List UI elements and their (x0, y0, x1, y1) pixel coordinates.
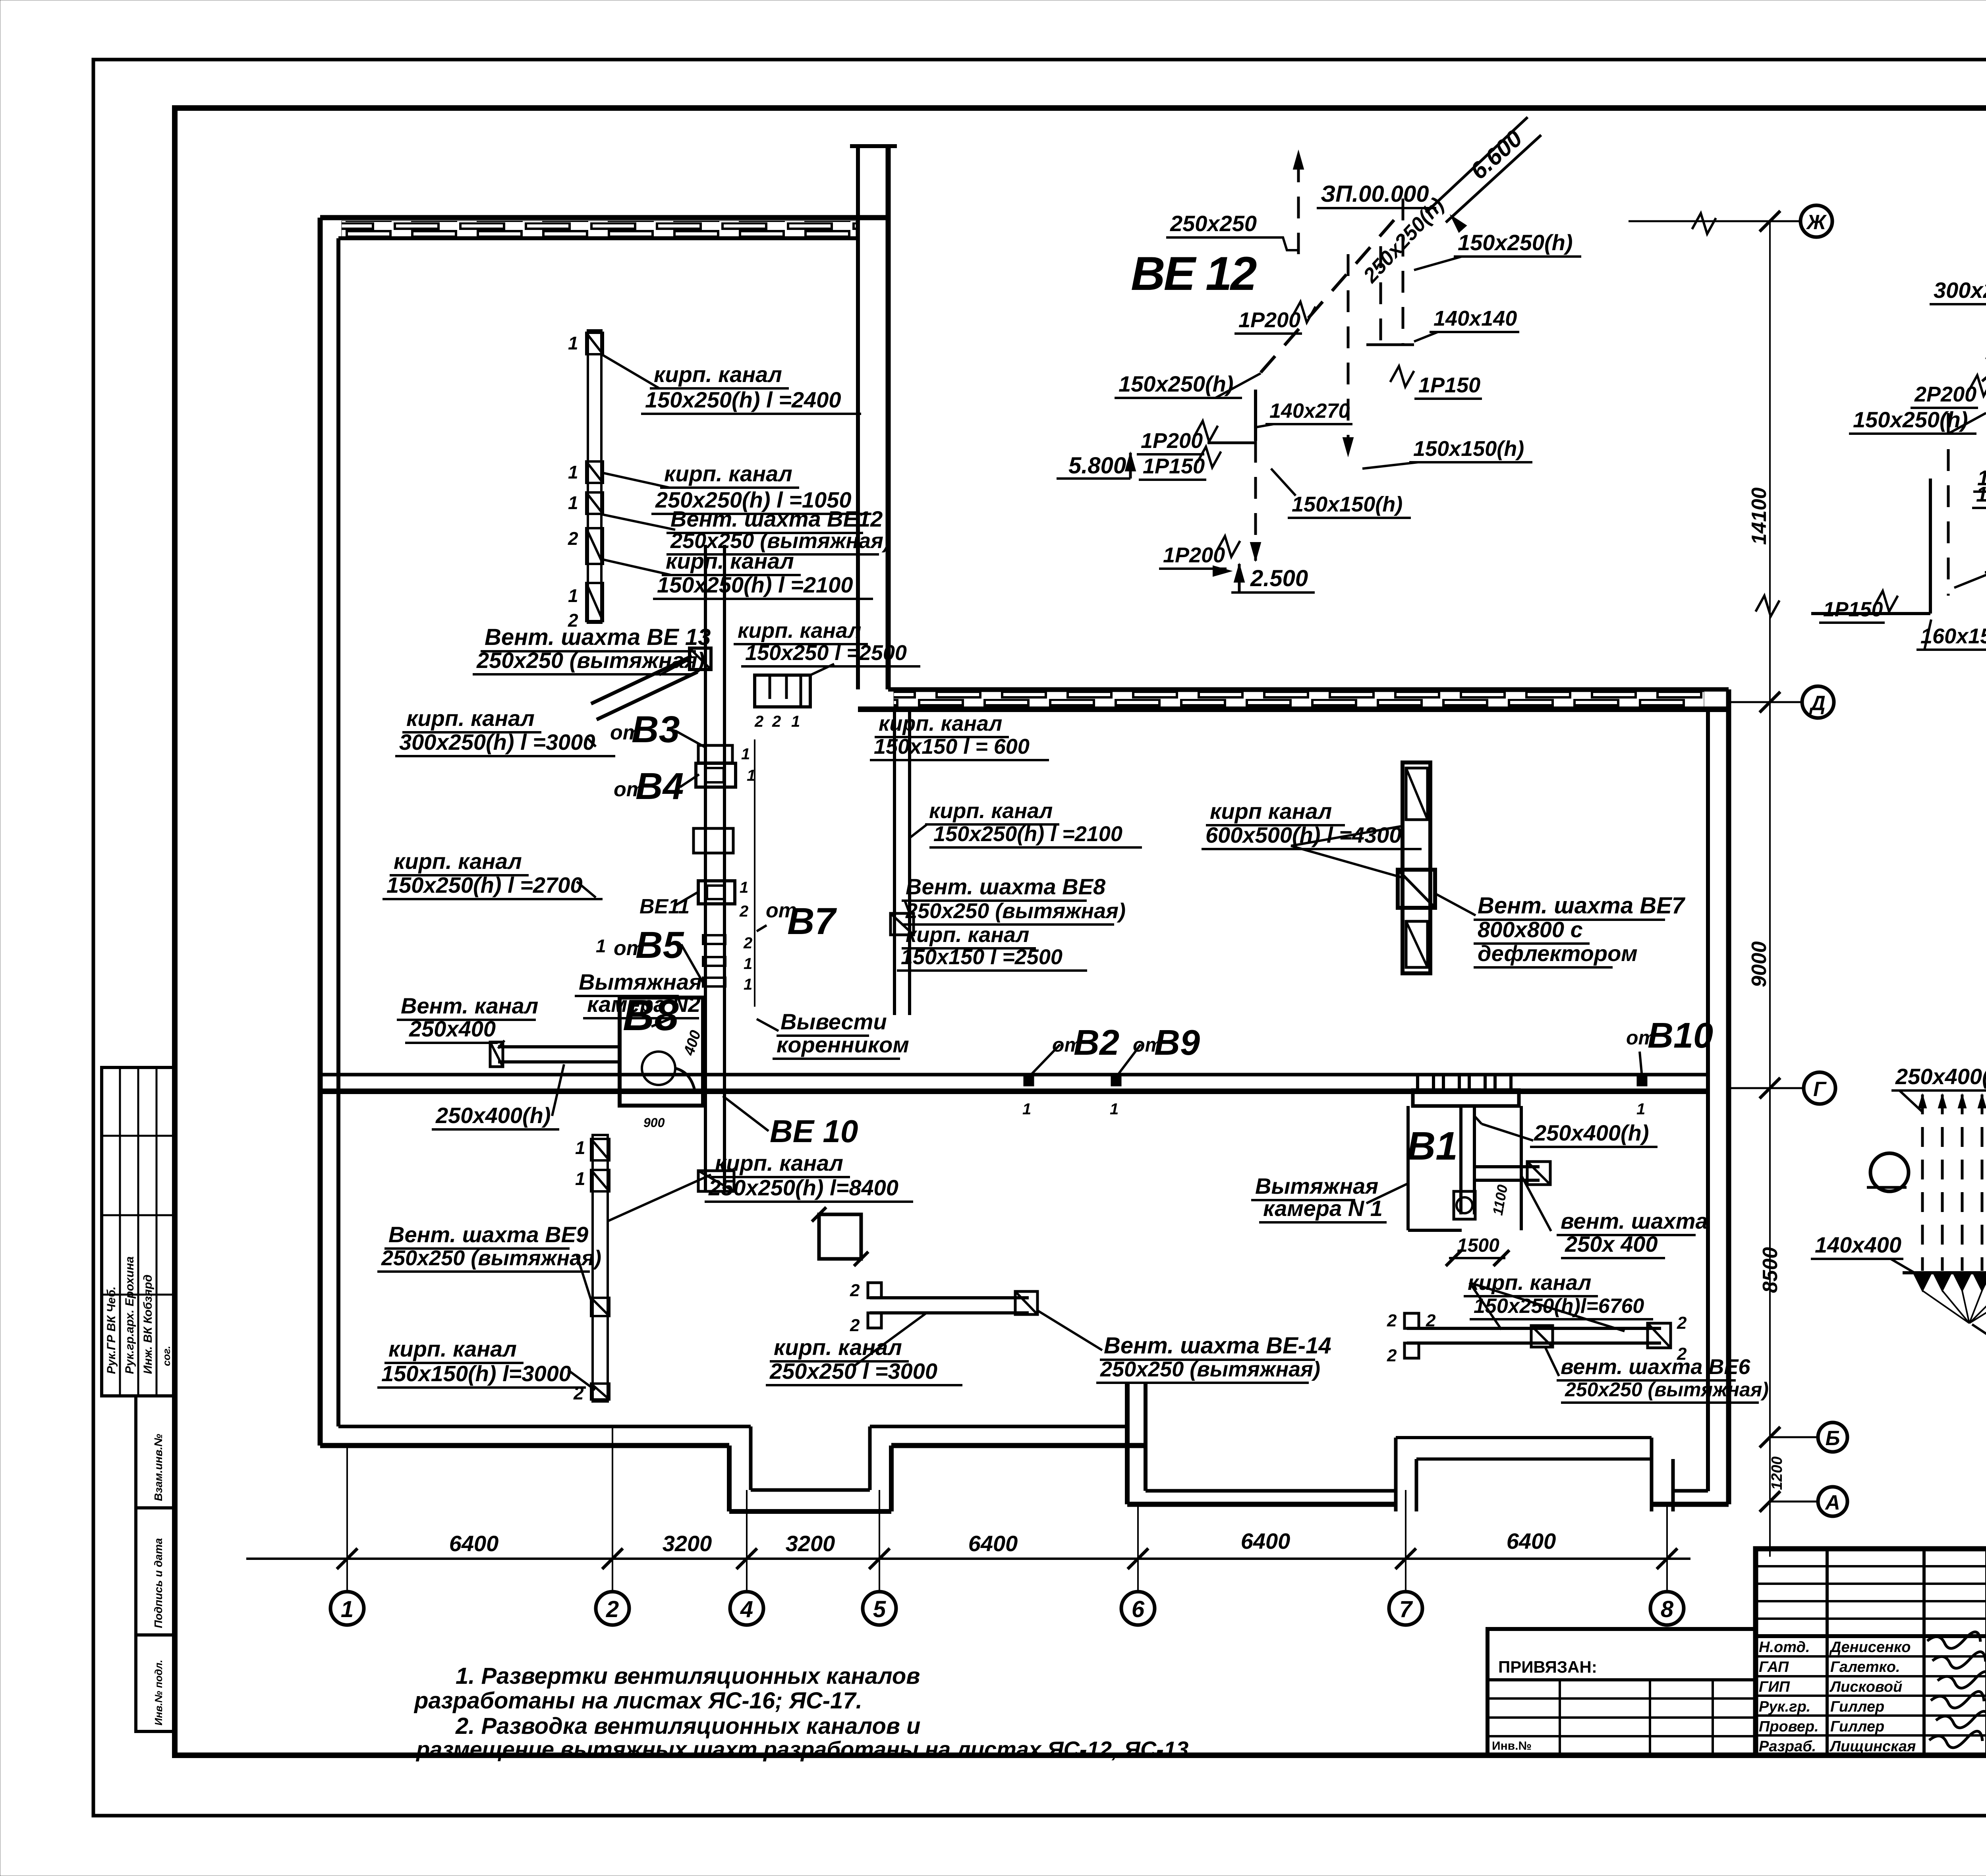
svg-text:2: 2 (606, 1596, 619, 1622)
svg-text:1: 1 (744, 976, 752, 993)
svg-text:ГАП: ГАП (1759, 1659, 1789, 1675)
svg-text:250x400(h): 250x400(h) (1534, 1120, 1649, 1145)
svg-text:1: 1 (747, 767, 755, 784)
svg-text:В10: В10 (1648, 1016, 1713, 1056)
svg-text:300x250(h) l =3000: 300x250(h) l =3000 (399, 730, 595, 755)
svg-text:В9: В9 (1154, 1023, 1200, 1063)
svg-text:кирп. канал: кирп. канал (774, 1335, 902, 1360)
svg-text:Инв.№: Инв.№ (1492, 1739, 1532, 1752)
svg-text:Подпись и дата: Подпись и дата (152, 1538, 164, 1628)
svg-text:кирп. канал: кирп. канал (738, 619, 861, 643)
svg-text:В2: В2 (1074, 1023, 1119, 1063)
svg-text:6400: 6400 (968, 1531, 1018, 1556)
svg-text:Лищинская: Лищинская (1829, 1738, 1916, 1755)
svg-text:ВЕ 10: ВЕ 10 (770, 1114, 858, 1149)
svg-text:150x250(h) l =2700: 150x250(h) l =2700 (386, 872, 582, 897)
svg-text:250x250 (вытяжная): 250x250 (вытяжная) (1100, 1357, 1320, 1381)
svg-text:кирп. канал: кирп. канал (666, 548, 794, 573)
svg-text:ВЕ11: ВЕ11 (639, 895, 690, 918)
svg-text:1200: 1200 (1769, 1456, 1785, 1490)
svg-text:кирп. канал: кирп. канал (879, 712, 1002, 735)
svg-text:1Р150: 1Р150 (1418, 373, 1480, 397)
svg-text:2. Разводка вентиляционных ка: 2. Разводка вентиляционных каналов и (455, 1713, 920, 1739)
svg-text:В8: В8 (623, 991, 679, 1040)
svg-text:2: 2 (1426, 1311, 1436, 1330)
svg-text:Рук.ГР ВК Чеб.: Рук.ГР ВК Чеб. (105, 1286, 118, 1374)
svg-text:150x250(h) l =2400: 150x250(h) l =2400 (645, 387, 841, 412)
svg-text:Инж. ВК Кобзярд: Инж. ВК Кобзярд (141, 1274, 155, 1374)
svg-text:8: 8 (1661, 1596, 1674, 1622)
svg-text:ПРИВЯЗАН:: ПРИВЯЗАН: (1498, 1658, 1597, 1676)
svg-text:8500: 8500 (1759, 1247, 1782, 1293)
svg-text:1: 1 (596, 936, 606, 956)
svg-text:вент. шахта: вент. шахта (1561, 1208, 1708, 1233)
svg-text:В7: В7 (787, 900, 837, 942)
svg-text:Гиллер: Гиллер (1830, 1718, 1884, 1735)
svg-text:ГИП: ГИП (1759, 1679, 1790, 1695)
svg-text:2: 2 (772, 713, 781, 730)
svg-text:В1: В1 (1407, 1124, 1458, 1168)
svg-text:Вытяжная: Вытяжная (1255, 1173, 1378, 1199)
svg-text:1500: 1500 (1457, 1235, 1499, 1256)
svg-text:ВЕ 12: ВЕ 12 (1131, 247, 1257, 300)
svg-text:1Р150: 1Р150 (1143, 454, 1205, 478)
svg-text:2: 2 (1677, 1313, 1687, 1333)
svg-text:Вент. шахта ВЕ8: Вент. шахта ВЕ8 (906, 874, 1106, 899)
svg-text:Инв.№ подл.: Инв.№ подл. (153, 1660, 164, 1725)
svg-text:Рук.гр.арх. Ерохина: Рук.гр.арх. Ерохина (123, 1256, 136, 1374)
svg-text:1Р200: 1Р200 (1976, 483, 1986, 506)
svg-text:1: 1 (1022, 1100, 1031, 1118)
svg-text:кирп. канал: кирп. канал (654, 362, 782, 387)
svg-text:900: 900 (643, 1116, 665, 1130)
svg-text:Гиллер: Гиллер (1830, 1698, 1884, 1715)
svg-text:150x150 l =2500: 150x150 l =2500 (901, 945, 1063, 969)
svg-text:1: 1 (740, 879, 748, 896)
svg-text:дефлектором: дефлектором (1478, 941, 1638, 966)
svg-text:Вент. шахта ВЕ 13: Вент. шахта ВЕ 13 (485, 624, 711, 650)
svg-text:1: 1 (568, 492, 578, 513)
svg-text:кирп канал: кирп канал (1210, 799, 1332, 824)
svg-text:Вент. канал: Вент. канал (401, 993, 538, 1018)
svg-text:250x 400: 250x 400 (1565, 1231, 1658, 1256)
svg-text:Н.отд.: Н.отд. (1759, 1639, 1810, 1656)
svg-text:В3: В3 (632, 708, 680, 751)
svg-text:ЗП.00.000: ЗП.00.000 (1321, 181, 1429, 207)
svg-text:1Р200: 1Р200 (1238, 308, 1300, 332)
svg-text:1: 1 (568, 462, 578, 483)
svg-text:150x250(h)l=6760: 150x250(h)l=6760 (1474, 1295, 1644, 1318)
svg-text:150x250 l =2500: 150x250 l =2500 (745, 641, 907, 665)
svg-text:150x150(h): 150x150(h) (1413, 437, 1524, 461)
svg-text:1. Развертки вентиляционных к: 1. Развертки вентиляционных каналов (456, 1663, 920, 1689)
svg-text:кирп. канал: кирп. канал (929, 799, 1053, 823)
svg-text:разработаны на листах ЯС-16; Я: разработаны на листах ЯС-16; ЯС-17. (413, 1688, 862, 1714)
svg-text:140x270: 140x270 (1269, 400, 1350, 423)
svg-text:Разраб.: Разраб. (1759, 1738, 1816, 1755)
svg-text:вент. шахта ВЕ6: вент. шахта ВЕ6 (1561, 1355, 1750, 1379)
svg-text:2: 2 (850, 1281, 860, 1300)
svg-text:кирп. канал: кирп. канал (1468, 1271, 1591, 1295)
svg-text:Вент. шахта ВЕ9: Вент. шахта ВЕ9 (388, 1222, 588, 1247)
svg-text:В4: В4 (636, 765, 684, 807)
svg-text:Рук.гр.: Рук.гр. (1759, 1698, 1810, 1715)
svg-text:14100: 14100 (1748, 487, 1771, 545)
svg-text:1: 1 (341, 1596, 354, 1622)
svg-text:250x250 (вытяжная): 250x250 (вытяжная) (905, 899, 1126, 923)
svg-text:7: 7 (1399, 1596, 1413, 1622)
svg-text:1: 1 (1636, 1100, 1645, 1118)
svg-text:2: 2 (754, 713, 763, 730)
svg-text:Вывести: Вывести (780, 1009, 887, 1034)
svg-text:150x250(h): 150x250(h) (1458, 230, 1573, 255)
svg-text:Г: Г (1813, 1078, 1827, 1101)
svg-text:3200: 3200 (786, 1531, 835, 1556)
svg-text:4: 4 (740, 1596, 753, 1622)
svg-text:2: 2 (850, 1316, 860, 1335)
svg-text:150x250(h): 150x250(h) (1853, 407, 1968, 432)
svg-text:250x400(h): 250x400(h) (1895, 1064, 1986, 1089)
svg-text:1Р200: 1Р200 (1163, 543, 1225, 567)
svg-text:1: 1 (791, 713, 800, 730)
svg-text:150x250(h): 150x250(h) (1119, 371, 1234, 396)
svg-text:сог.: сог. (160, 1346, 172, 1366)
svg-text:А: А (1824, 1491, 1840, 1514)
svg-text:5.800: 5.800 (1068, 453, 1126, 479)
svg-text:кирп. канал: кирп. канал (388, 1336, 517, 1361)
svg-text:250x400: 250x400 (409, 1016, 496, 1041)
svg-text:9000: 9000 (1748, 941, 1771, 987)
svg-text:Взам.инв.№: Взам.инв.№ (152, 1434, 164, 1501)
svg-text:Галетко.: Галетко. (1830, 1659, 1900, 1675)
svg-text:140x400: 140x400 (1815, 1232, 1901, 1257)
svg-text:250x250 (вытяжная): 250x250 (вытяжная) (1565, 1378, 1769, 1401)
svg-text:кирп. канал: кирп. канал (406, 706, 535, 731)
svg-text:2.500: 2.500 (1250, 566, 1308, 591)
svg-text:2Р200: 2Р200 (1914, 382, 1976, 406)
svg-text:2: 2 (573, 1383, 584, 1403)
svg-text:кирп. канал: кирп. канал (394, 849, 522, 874)
svg-text:250x250(h) l=8400: 250x250(h) l=8400 (708, 1175, 898, 1200)
svg-text:В5: В5 (636, 924, 684, 966)
svg-text:5: 5 (873, 1596, 886, 1622)
svg-text:800x800 с: 800x800 с (1478, 917, 1583, 942)
svg-text:2: 2 (743, 934, 752, 952)
svg-text:кирп. канал: кирп. канал (906, 923, 1029, 947)
svg-text:кирп. канал: кирп. канал (664, 461, 792, 486)
svg-text:150x250(h) l =2100: 150x250(h) l =2100 (657, 572, 853, 597)
svg-text:140x140: 140x140 (1433, 307, 1517, 330)
svg-text:1: 1 (1110, 1100, 1119, 1118)
svg-text:1Р150: 1Р150 (1823, 598, 1883, 621)
svg-text:Б: Б (1826, 1427, 1840, 1450)
svg-text:150x150(h) l=3000: 150x150(h) l=3000 (381, 1361, 571, 1386)
svg-text:6: 6 (1132, 1596, 1145, 1622)
svg-text:6400: 6400 (449, 1531, 499, 1556)
svg-text:Денисенко: Денисенко (1829, 1639, 1911, 1656)
svg-text:250x400(h): 250x400(h) (435, 1103, 551, 1128)
svg-text:3200: 3200 (663, 1531, 712, 1556)
svg-text:6400: 6400 (1241, 1529, 1291, 1554)
svg-text:1: 1 (575, 1137, 585, 1158)
svg-text:250x250: 250x250 (1170, 211, 1257, 236)
svg-text:Д: Д (1809, 692, 1826, 715)
svg-text:Вент. шахта ВЕ-14: Вент. шахта ВЕ-14 (1104, 1333, 1331, 1359)
svg-text:1: 1 (568, 333, 578, 353)
svg-text:300x250(h): 300x250(h) (1934, 278, 1986, 303)
svg-text:6400: 6400 (1507, 1529, 1556, 1554)
svg-text:Вент. шахта ВЕ12: Вент. шахта ВЕ12 (670, 506, 883, 531)
svg-text:2: 2 (1387, 1346, 1397, 1365)
svg-text:1: 1 (568, 585, 578, 606)
svg-text:коренником: коренником (777, 1032, 909, 1057)
svg-text:1: 1 (744, 955, 752, 973)
svg-text:2: 2 (739, 903, 748, 920)
svg-text:150x250(h) l =2100: 150x250(h) l =2100 (933, 822, 1122, 846)
svg-text:2: 2 (1387, 1311, 1397, 1330)
svg-text:камера N 1: камера N 1 (1263, 1196, 1383, 1221)
svg-text:1: 1 (741, 745, 750, 763)
svg-text:150x150(h): 150x150(h) (1292, 492, 1403, 516)
svg-text:2: 2 (568, 528, 578, 549)
svg-text:1Р200: 1Р200 (1141, 429, 1203, 453)
svg-text:Лисковой: Лисковой (1829, 1679, 1902, 1695)
svg-text:размещение вытяжных шахт разра: размещение вытяжных шахт разработаны на … (415, 1737, 1195, 1762)
svg-text:Провер.: Провер. (1759, 1718, 1819, 1735)
svg-text:1: 1 (575, 1168, 585, 1189)
svg-text:Вент. шахта ВЕ7: Вент. шахта ВЕ7 (1478, 893, 1686, 919)
svg-text:150x150 l = 600: 150x150 l = 600 (874, 735, 1030, 759)
svg-text:250x250 (вытяжная): 250x250 (вытяжная) (381, 1246, 601, 1270)
svg-text:250x250 l =3000: 250x250 l =3000 (769, 1359, 937, 1384)
svg-text:Ж: Ж (1806, 211, 1827, 234)
